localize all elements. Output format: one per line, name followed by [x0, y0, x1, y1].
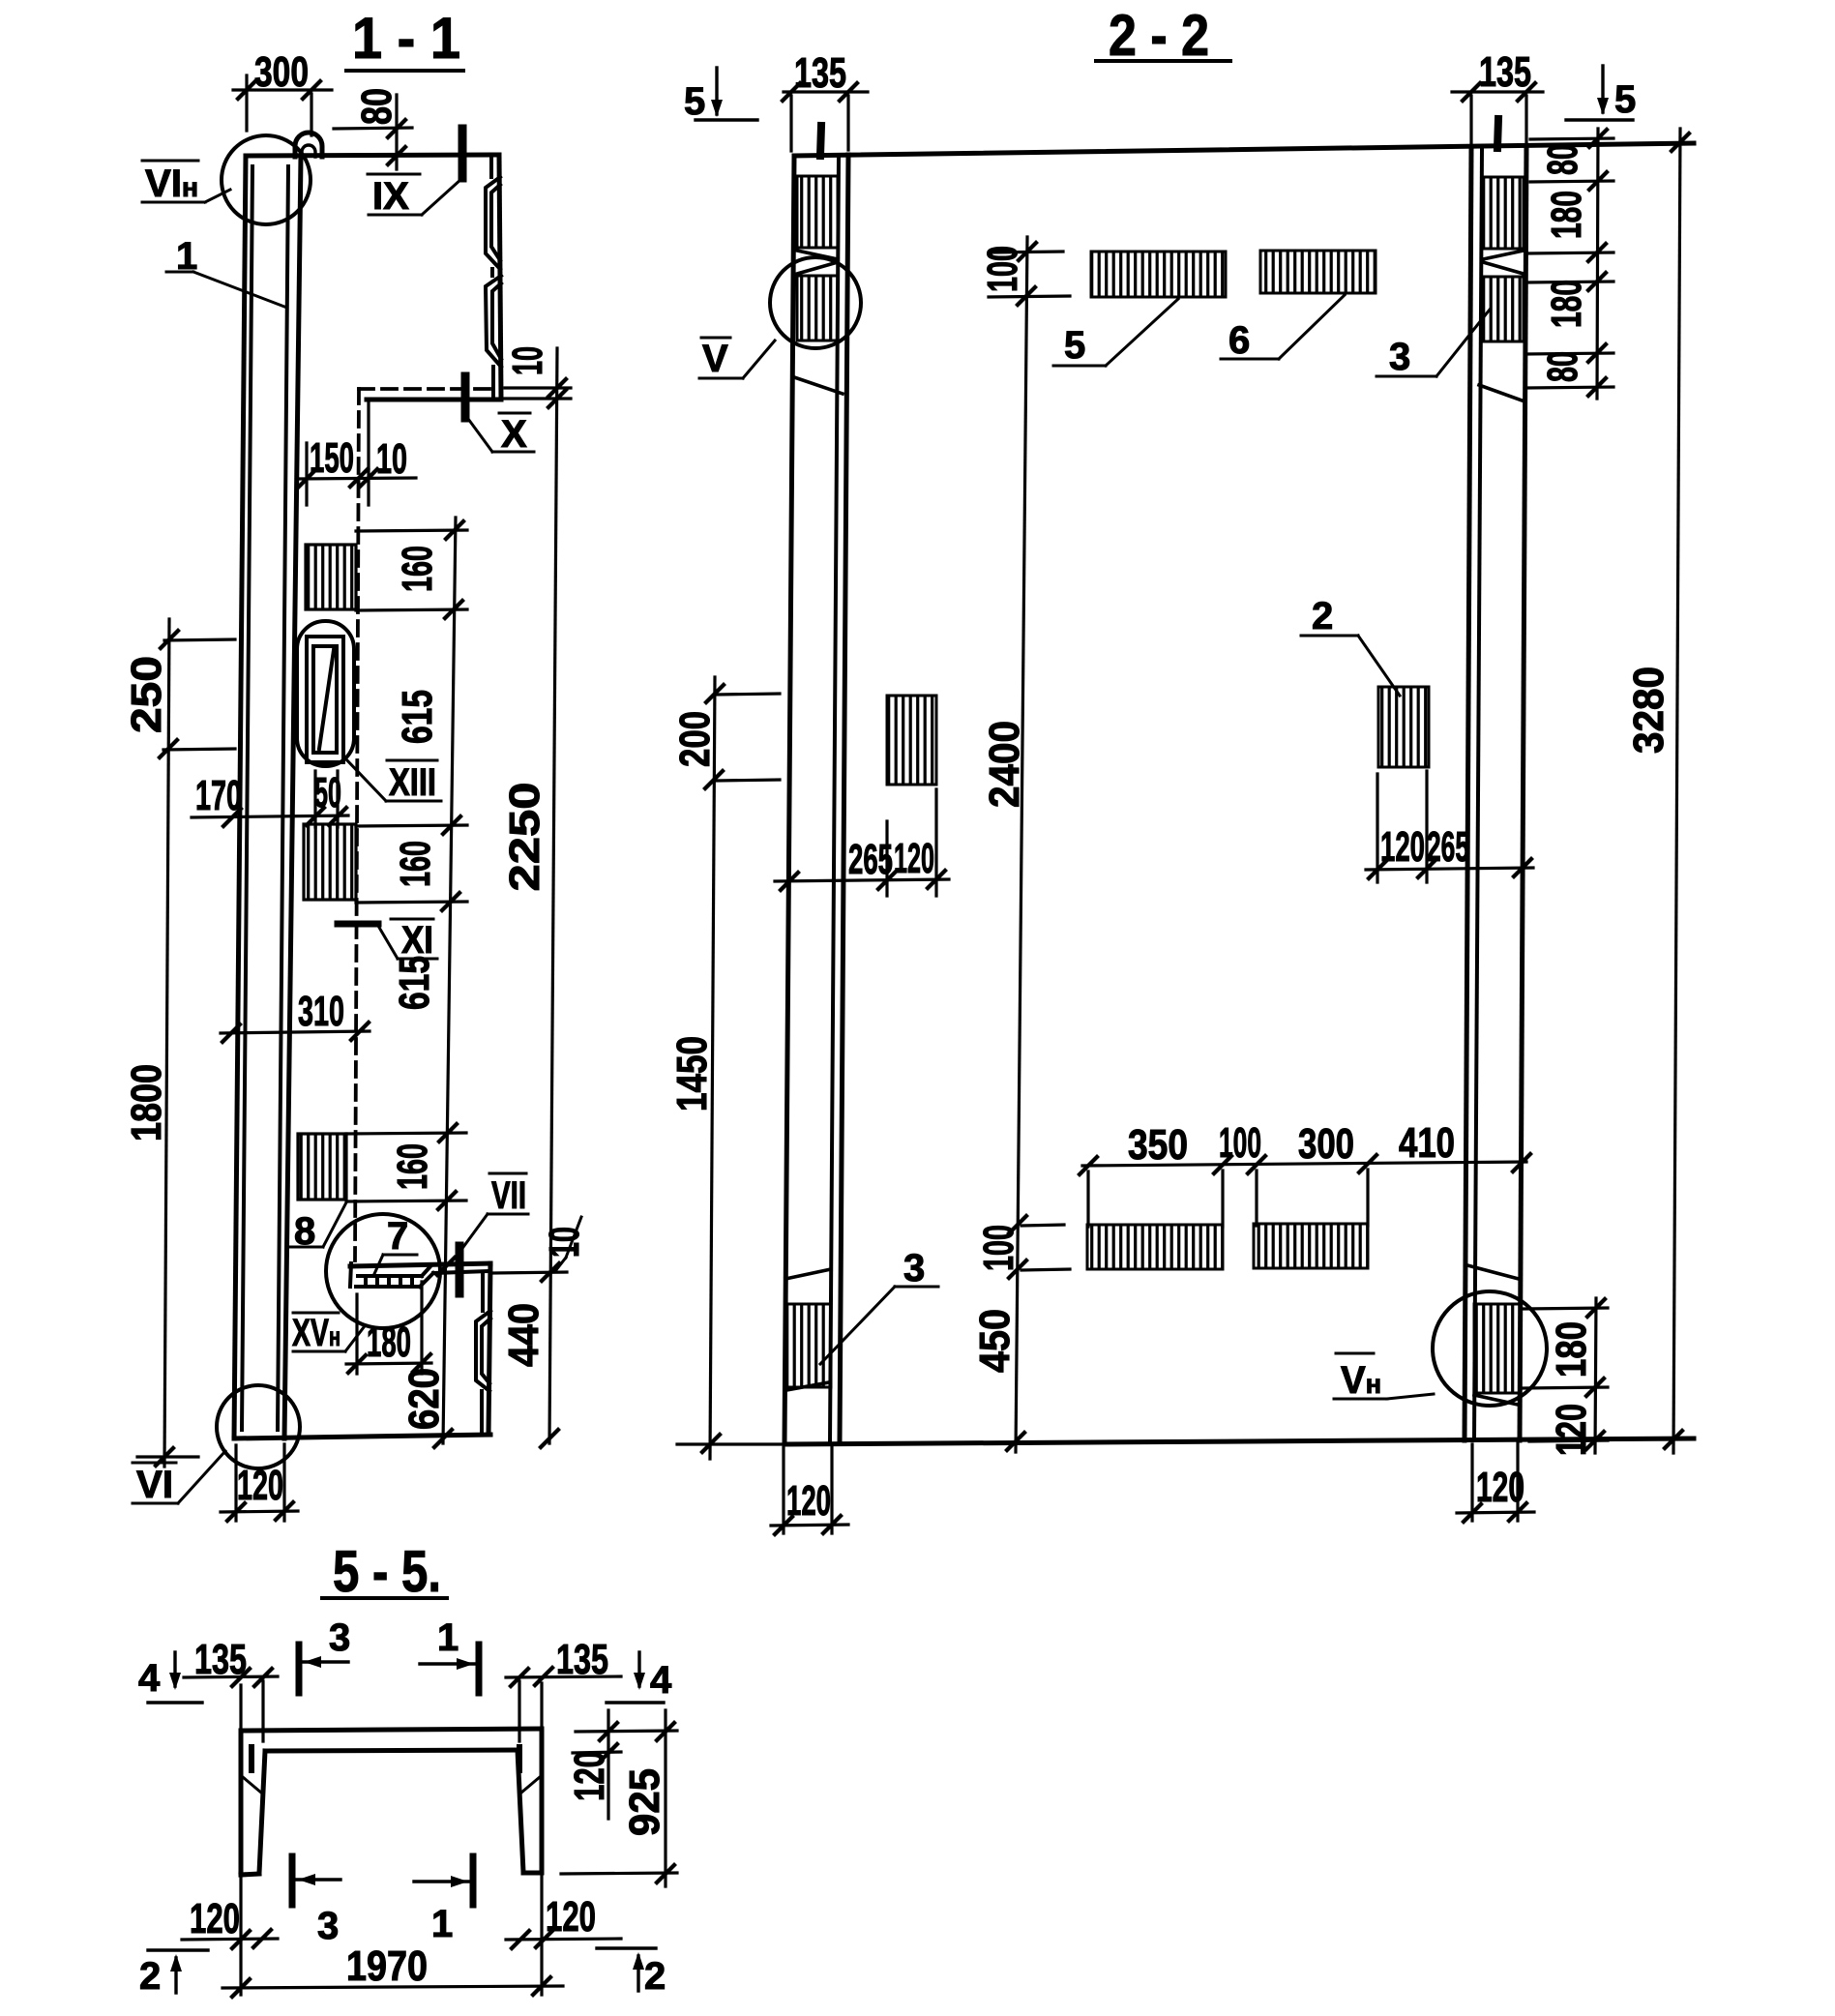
svg-text:450: 450 [971, 1309, 1019, 1373]
svg-text:160: 160 [392, 841, 439, 887]
svg-text:5: 5 [684, 80, 705, 123]
svg-text:150: 150 [310, 434, 354, 482]
svg-text:X: X [501, 413, 527, 456]
svg-text:160: 160 [389, 1143, 436, 1190]
svg-text:3280: 3280 [1625, 667, 1672, 754]
svg-text:1970: 1970 [346, 1942, 428, 1990]
svg-text:120: 120 [190, 1895, 240, 1942]
svg-text:135: 135 [794, 49, 846, 97]
svg-text:160: 160 [394, 546, 441, 592]
svg-text:8: 8 [294, 1210, 315, 1253]
svg-text:120: 120 [1476, 1464, 1524, 1511]
svg-text:4: 4 [650, 1659, 672, 1702]
svg-text:IX: IX [372, 175, 409, 218]
svg-text:120: 120 [786, 1477, 831, 1525]
svg-text:120: 120 [1380, 823, 1425, 871]
svg-text:3: 3 [329, 1616, 350, 1659]
svg-text:4: 4 [138, 1657, 161, 1700]
svg-text:100: 100 [975, 1225, 1022, 1271]
svg-text:120: 120 [237, 1462, 283, 1509]
svg-text:3: 3 [903, 1247, 925, 1290]
svg-text:1: 1 [437, 1616, 459, 1659]
svg-text:2: 2 [644, 1955, 666, 1998]
svg-text:1: 1 [431, 1903, 453, 1945]
svg-text:265: 265 [848, 836, 893, 883]
svg-text:170: 170 [195, 772, 242, 819]
svg-text:300: 300 [254, 48, 309, 96]
svg-text:120: 120 [546, 1893, 596, 1941]
svg-text:80: 80 [1539, 144, 1586, 175]
svg-text:250: 250 [123, 656, 170, 733]
svg-text:10: 10 [541, 1227, 588, 1258]
svg-text:120: 120 [894, 835, 934, 882]
svg-text:50: 50 [314, 769, 341, 816]
svg-text:310: 310 [298, 988, 344, 1035]
svg-text:925: 925 [621, 1768, 668, 1836]
svg-text:1450: 1450 [668, 1036, 716, 1112]
svg-text:620: 620 [400, 1368, 448, 1430]
svg-text:1800: 1800 [123, 1064, 170, 1141]
svg-text:2400: 2400 [981, 721, 1028, 808]
svg-text:180: 180 [367, 1319, 411, 1366]
svg-text:2: 2 [1312, 595, 1333, 637]
svg-text:7: 7 [387, 1215, 408, 1258]
svg-text:180: 180 [1548, 1321, 1595, 1378]
svg-text:120: 120 [1548, 1404, 1595, 1456]
svg-text:10: 10 [504, 346, 551, 375]
svg-text:V: V [702, 338, 728, 380]
svg-text:135: 135 [1479, 48, 1531, 96]
svg-text:100: 100 [1219, 1119, 1261, 1167]
svg-text:135: 135 [194, 1636, 247, 1683]
svg-text:410: 410 [1399, 1119, 1455, 1167]
svg-text:2 - 2: 2 - 2 [1109, 3, 1209, 68]
svg-text:VII: VII [491, 1174, 526, 1217]
svg-text:265: 265 [1427, 823, 1469, 871]
svg-text:80: 80 [1539, 351, 1586, 382]
svg-text:615: 615 [391, 956, 438, 1010]
svg-text:120: 120 [566, 1751, 613, 1801]
svg-text:135: 135 [556, 1636, 608, 1683]
svg-text:2250: 2250 [501, 783, 548, 892]
svg-text:350: 350 [1128, 1121, 1188, 1169]
svg-text:XIII: XIII [389, 761, 436, 804]
svg-text:6: 6 [1228, 319, 1250, 362]
svg-text:300: 300 [1298, 1120, 1354, 1168]
svg-text:180: 180 [1543, 191, 1590, 239]
svg-text:3: 3 [317, 1905, 339, 1947]
svg-text:3: 3 [1389, 336, 1410, 378]
svg-text:200: 200 [671, 711, 719, 767]
svg-text:5: 5 [1614, 78, 1636, 121]
svg-text:XI: XI [401, 919, 433, 962]
svg-text:180: 180 [1543, 280, 1590, 328]
svg-text:10: 10 [376, 435, 407, 483]
svg-text:2: 2 [139, 1955, 161, 1998]
svg-text:1 - 1: 1 - 1 [352, 6, 460, 71]
svg-text:615: 615 [394, 690, 441, 744]
svg-text:80: 80 [353, 88, 400, 125]
svg-text:100: 100 [979, 246, 1026, 292]
svg-text:VI: VI [136, 1464, 173, 1506]
svg-text:5 - 5.: 5 - 5. [333, 1539, 441, 1604]
svg-text:440: 440 [500, 1303, 548, 1367]
svg-text:5: 5 [1064, 324, 1085, 367]
svg-text:1: 1 [176, 235, 197, 278]
